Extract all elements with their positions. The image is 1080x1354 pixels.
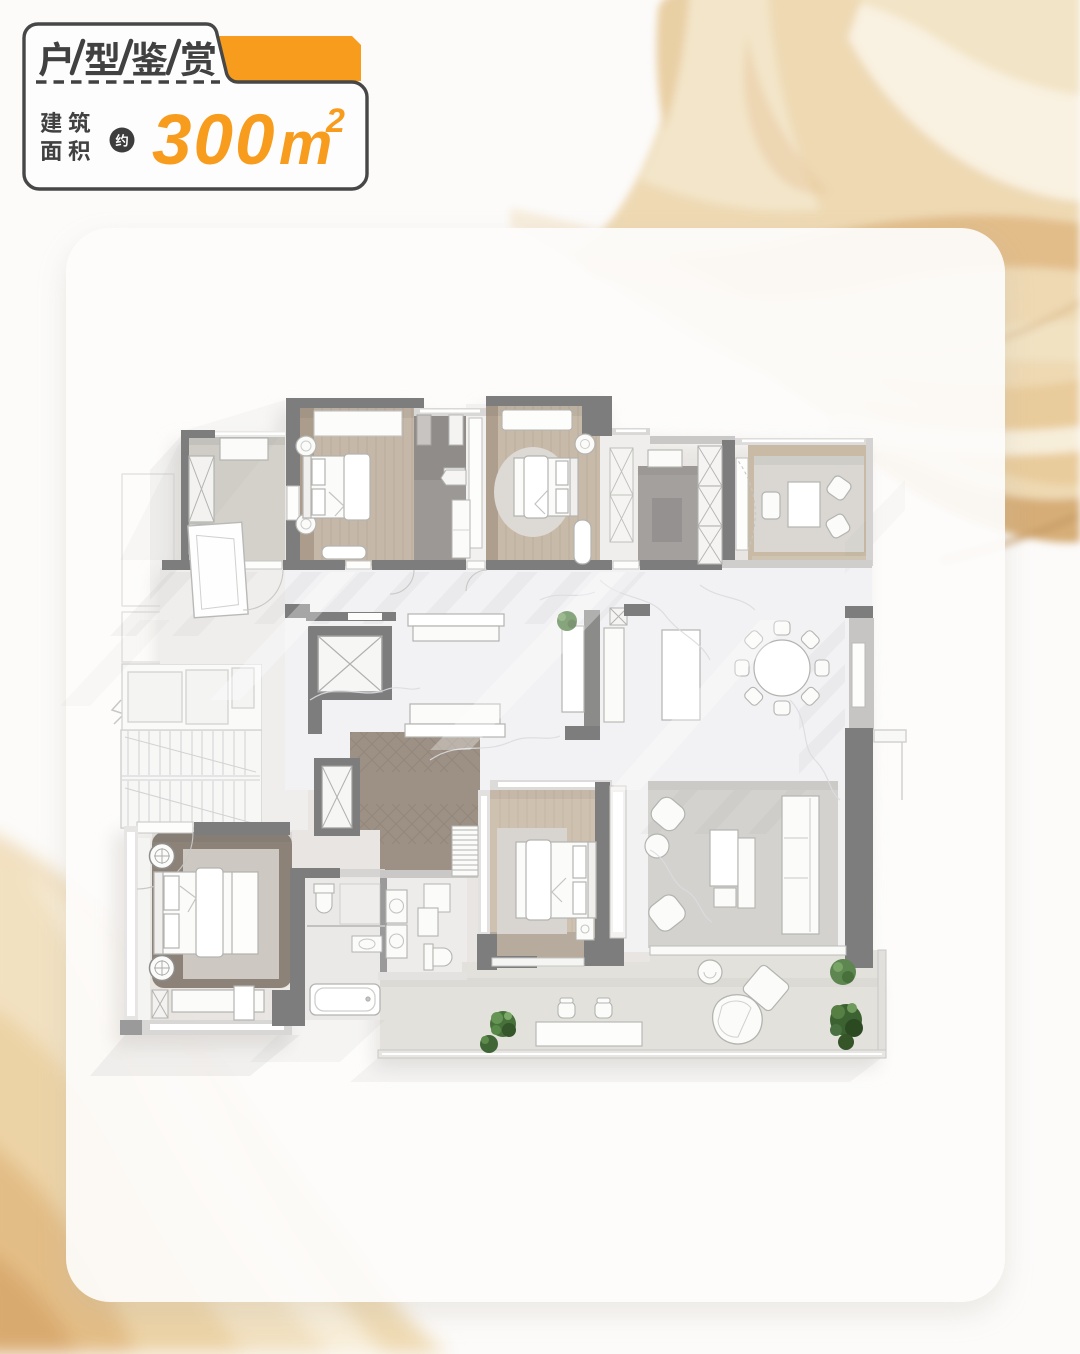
svg-text:300: 300 [152, 101, 276, 180]
svg-text:m: m [279, 110, 332, 177]
svg-text:2: 2 [325, 102, 345, 140]
